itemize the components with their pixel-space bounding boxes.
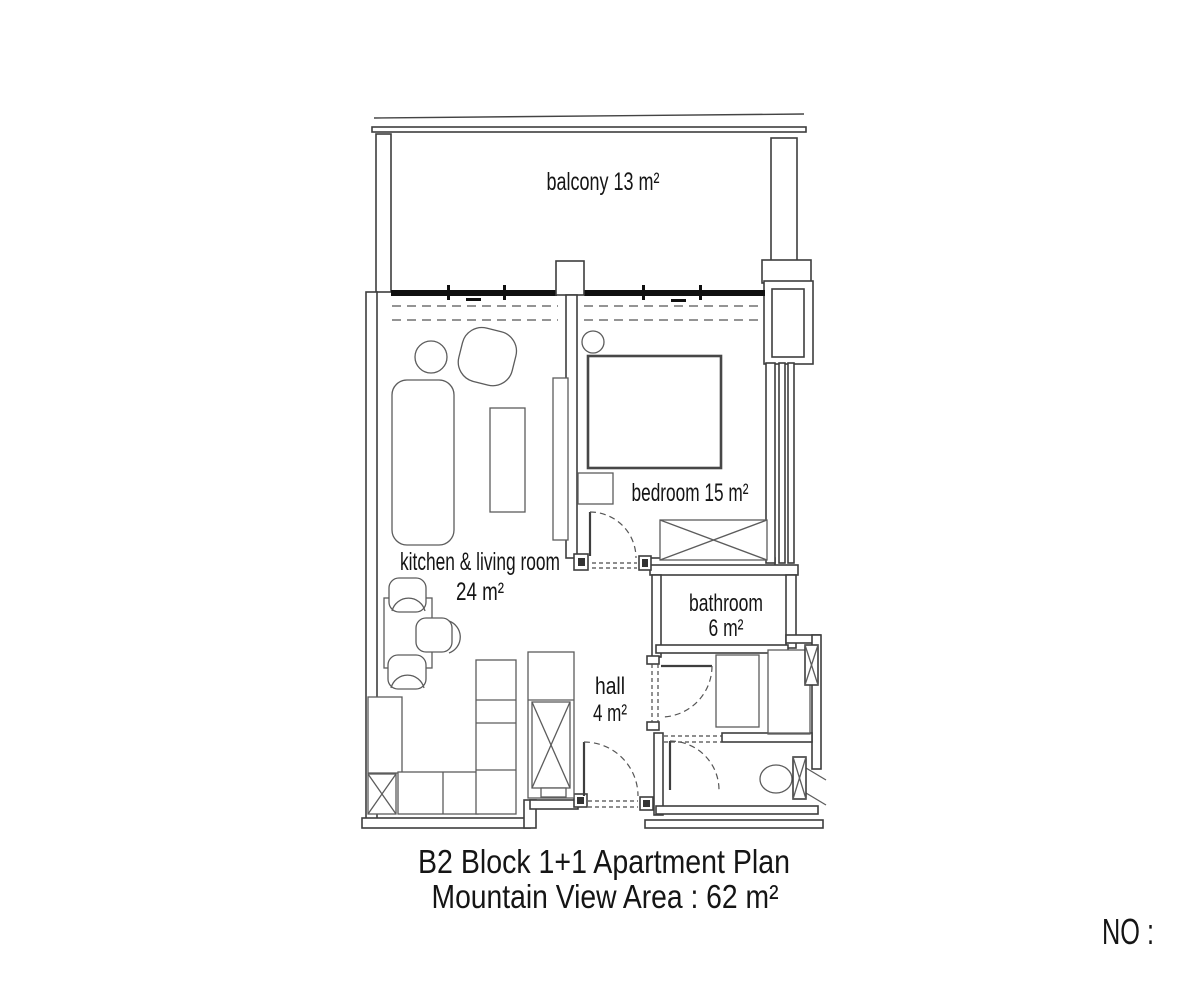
hall-wardrobe [528,652,574,798]
entrance-door-swing [584,742,638,796]
window-right-section [584,290,765,296]
jamb-mark [642,559,648,567]
plan-title-line2: Mountain View Area : 62 m² [432,878,779,915]
no-label: NO : [1102,911,1154,952]
balcony-rail-wall [372,127,806,132]
jamb-mark [578,558,585,566]
sofa [392,380,454,545]
dining-chair [388,655,426,689]
plan-title-line1: B2 Block 1+1 Apartment Plan [418,843,790,880]
kitchen-counter-left [368,697,402,773]
bathroom-opening-jamb [647,722,659,730]
side-table [415,341,447,373]
kitchen-living-label: kitchen & living room [400,548,560,576]
bedroom-door-swing [590,512,636,558]
duct-line-right [788,363,794,563]
dining-chair [389,578,426,612]
window-tick [503,285,506,300]
nightstand [578,473,613,504]
stool [582,331,604,353]
bathroom-top-wall [650,565,798,575]
pillar-inner [772,289,804,357]
dining-chair [416,618,452,652]
bathroom-wc-fixtures [716,645,818,799]
balcony-door-mark [671,299,686,302]
kitchen-counter-bottom [398,772,478,814]
jamb-mark [577,797,584,804]
bathroom-opening-jamb [647,656,659,664]
floor-plan-page: balcony 13 m² kitchen & living room 24 m… [0,0,1200,1000]
wardrobe-drawer [541,788,566,797]
armchair [454,323,521,390]
wardrobe-body [528,652,574,798]
bathroom-area: 6 m² [709,615,744,642]
balcony-edge-line [374,114,804,118]
balcony-door-mark [466,298,481,301]
window-center-post [556,261,584,295]
jamb-mark [643,800,650,807]
right-wall-step [762,260,811,283]
hall-label: hall [595,673,625,700]
window-tick [447,285,450,300]
bottom-outer-wall-left [362,818,530,828]
balcony-right-wall [771,138,797,262]
hall-area: 4 m² [593,700,627,727]
kitchen-living-area: 24 m² [456,578,504,606]
window-left-section [391,290,557,296]
toilet [760,765,792,793]
floor-plan-drawing: balcony 13 m² kitchen & living room 24 m… [0,0,1200,1000]
window-wall [391,261,765,302]
wc-left-wall [654,733,663,815]
balcony-label: balcony 13 m² [547,168,660,196]
vanity [716,655,759,727]
tv-unit [553,378,568,540]
hall-bottom-wall [530,800,578,809]
wc-bottom-wall [656,806,818,814]
coffee-table [490,408,525,512]
wc-door-swing [670,741,719,790]
kitchen-tall-unit [476,660,516,814]
sill-dashed-lines [392,306,764,320]
bathroom-door-swing [661,666,712,717]
window-tick [699,285,702,300]
bedroom-label: bedroom 15 m² [632,479,749,507]
footer-text: B2 Block 1+1 Apartment Plan Mountain Vie… [418,843,1154,952]
bottom-outer-wall-right [645,820,823,828]
bathroom-label: bathroom [689,590,763,617]
wall-break-line [806,793,826,805]
shower-cabinet [768,650,810,734]
duct-line-left [779,363,785,563]
balcony-left-wall [376,134,391,292]
living-room-furniture [384,323,568,689]
bed [588,356,721,468]
window-tick [642,285,645,300]
bedroom-furniture [578,331,767,560]
